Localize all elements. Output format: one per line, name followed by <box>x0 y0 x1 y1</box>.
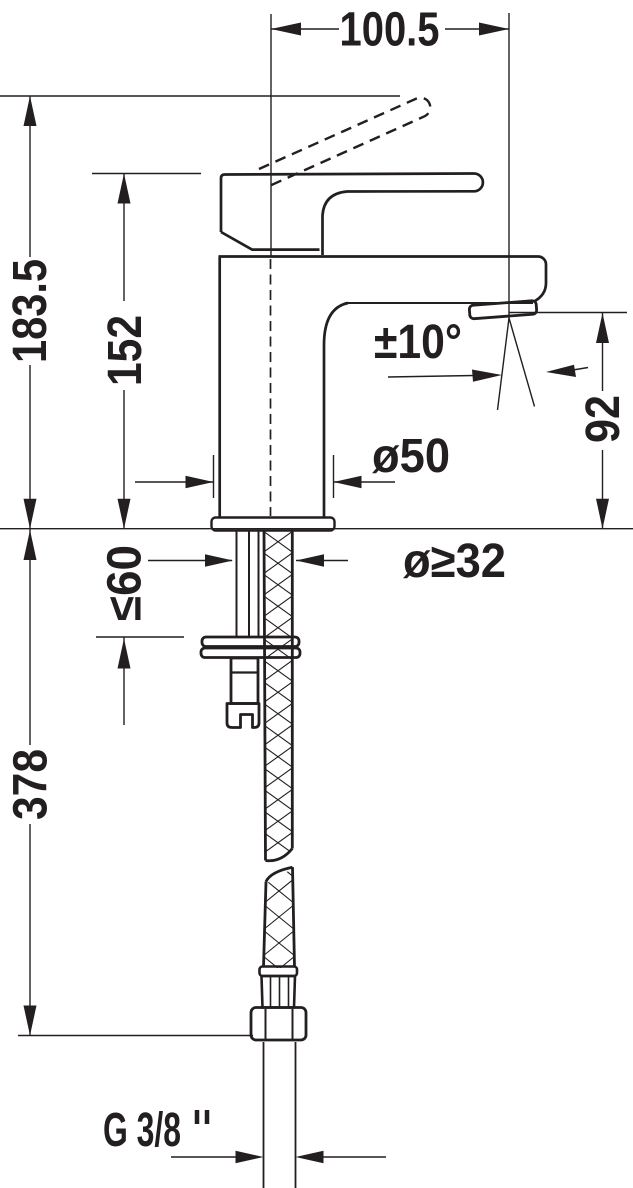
svg-text:378: 378 <box>5 749 58 820</box>
svg-text:±10°: ±10° <box>374 316 462 369</box>
svg-text:ø≥32: ø≥32 <box>403 535 506 588</box>
svg-text:G 3/8: G 3/8 <box>103 1104 181 1157</box>
svg-text:152: 152 <box>99 315 152 386</box>
svg-text:≤60: ≤60 <box>99 545 152 621</box>
svg-text:92: 92 <box>577 395 630 443</box>
svg-text:ø50: ø50 <box>372 430 450 483</box>
svg-text:100.5: 100.5 <box>340 4 440 57</box>
svg-text:183.5: 183.5 <box>4 259 57 363</box>
